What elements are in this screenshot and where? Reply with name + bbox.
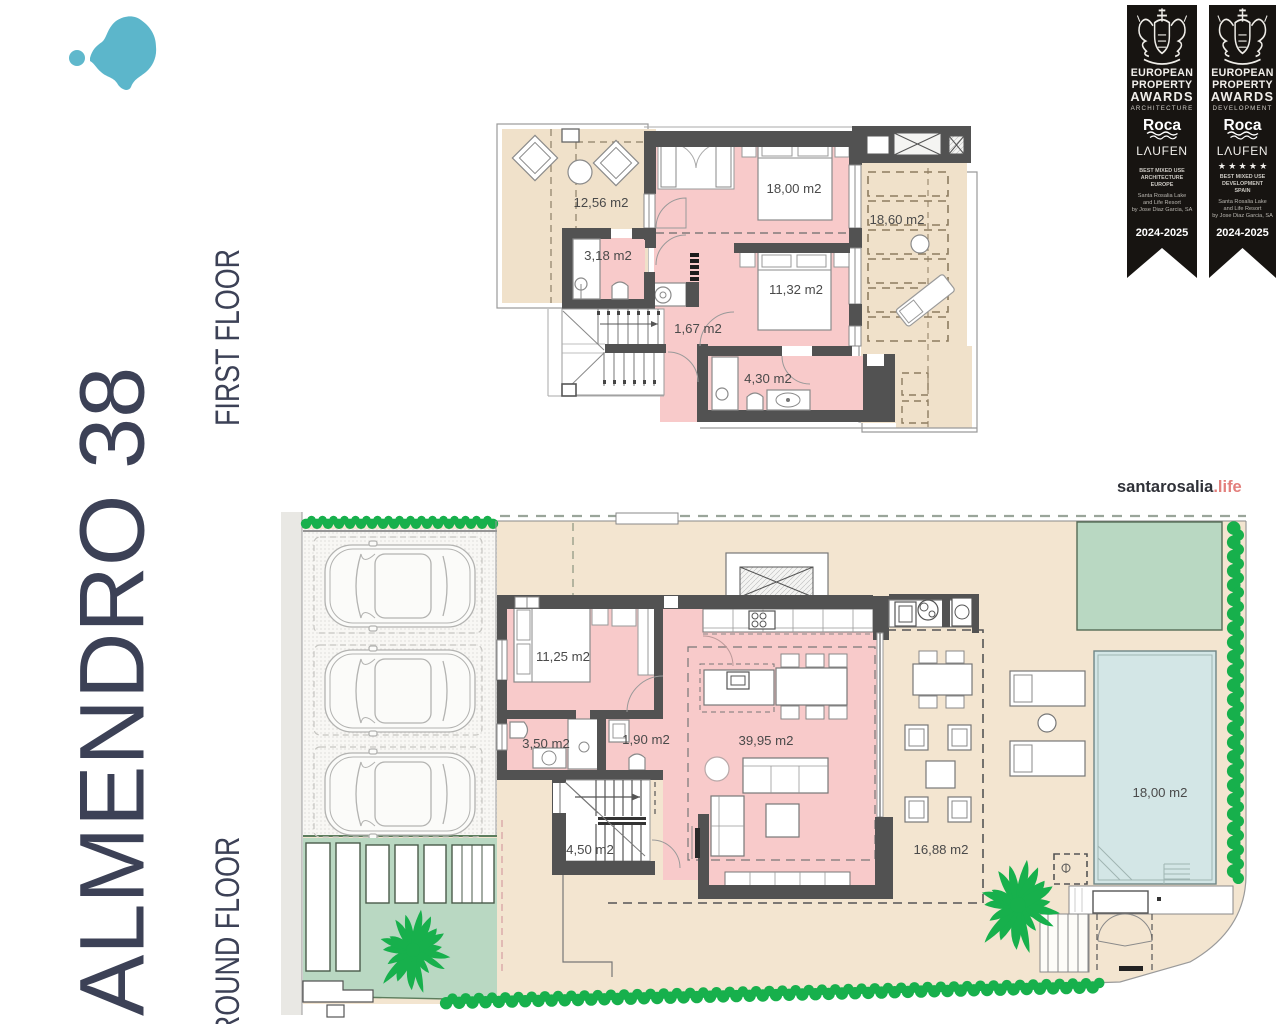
svg-text:GROUND FLOOR: GROUND FLOOR <box>209 837 247 1024</box>
svg-text:Roca: Roca <box>1143 117 1181 134</box>
svg-text:2024-2025: 2024-2025 <box>1136 227 1189 239</box>
svg-text:EUROPEAN: EUROPEAN <box>1211 67 1273 79</box>
svg-text:ARCHITECTURE: ARCHITECTURE <box>1131 105 1194 112</box>
svg-text:ALMENDRO 38: ALMENDRO 38 <box>62 367 164 1016</box>
svg-text:18,00 m2: 18,00 m2 <box>767 181 822 196</box>
svg-text:11,25 m2: 11,25 m2 <box>536 649 590 664</box>
svg-text:Santa Rosalia Lake: Santa Rosalia Lake <box>1218 199 1267 205</box>
svg-text:4,30 m2: 4,30 m2 <box>744 371 792 386</box>
svg-text:Roca: Roca <box>1224 117 1262 134</box>
svg-text:AWARDS: AWARDS <box>1130 89 1193 104</box>
svg-text:1,67 m2: 1,67 m2 <box>674 321 722 336</box>
svg-text:ARCHITECTURE: ARCHITECTURE <box>1141 175 1184 181</box>
svg-text:SPAIN: SPAIN <box>1234 188 1250 194</box>
svg-text:11,32 m2: 11,32 m2 <box>769 282 823 297</box>
svg-text:DEVELOPMENT: DEVELOPMENT <box>1222 181 1264 187</box>
svg-text:FIRST FLOOR: FIRST FLOOR <box>209 249 247 426</box>
svg-text:BEST MIXED USE: BEST MIXED USE <box>1220 174 1266 180</box>
svg-text:18,00 m2: 18,00 m2 <box>1133 785 1188 800</box>
svg-text:by Jose Diaz Garcia, SA: by Jose Diaz Garcia, SA <box>1132 207 1193 213</box>
svg-text:3,50 m2: 3,50 m2 <box>522 736 570 751</box>
svg-text:santarosalia.life: santarosalia.life <box>1117 478 1242 496</box>
svg-text:AWARDS: AWARDS <box>1211 89 1274 104</box>
svg-text:EUROPE: EUROPE <box>1151 182 1174 188</box>
svg-text:3,18 m2: 3,18 m2 <box>584 248 632 263</box>
svg-text:★ ★ ★ ★ ★: ★ ★ ★ ★ ★ <box>1218 161 1267 171</box>
svg-text:and Life Resort: and Life Resort <box>1224 206 1262 212</box>
svg-text:by Jose Diaz Garcia, SA: by Jose Diaz Garcia, SA <box>1212 213 1273 219</box>
svg-text:39,95 m2: 39,95 m2 <box>739 733 794 748</box>
svg-text:12,56 m2: 12,56 m2 <box>574 195 629 210</box>
svg-text:EUROPEAN: EUROPEAN <box>1131 67 1193 79</box>
svg-text:and Life Resort: and Life Resort <box>1143 200 1181 206</box>
svg-text:2024-2025: 2024-2025 <box>1216 227 1269 239</box>
svg-text:LΛUFEN: LΛUFEN <box>1217 144 1269 158</box>
svg-text:Santa Rosalia Lake: Santa Rosalia Lake <box>1138 193 1187 199</box>
svg-text:1,90 m2: 1,90 m2 <box>622 732 670 747</box>
svg-text:4,50 m2: 4,50 m2 <box>566 842 614 857</box>
svg-text:BEST MIXED USE: BEST MIXED USE <box>1139 168 1185 174</box>
svg-text:LΛUFEN: LΛUFEN <box>1136 144 1188 158</box>
svg-text:16,88 m2: 16,88 m2 <box>914 842 969 857</box>
svg-text:DEVELOPMENT: DEVELOPMENT <box>1213 105 1273 112</box>
svg-text:18,60 m2: 18,60 m2 <box>870 212 925 227</box>
